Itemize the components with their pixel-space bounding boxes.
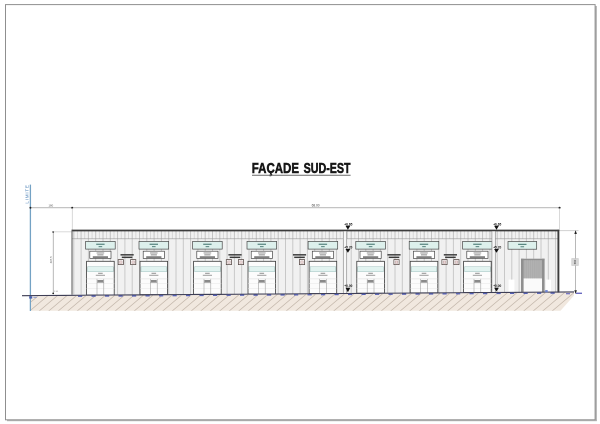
svg-text:+0.00: +0.00	[344, 284, 352, 288]
svg-text:+6.65: +6.65	[493, 222, 501, 226]
svg-text:LIMITE: LIMITE	[24, 185, 29, 204]
svg-text:FAÇADE: FAÇADE	[252, 161, 299, 177]
svg-text:SUD-EST: SUD-EST	[304, 161, 351, 177]
svg-text:+0.00: +0.00	[493, 284, 501, 288]
svg-text:667,5: 667,5	[49, 256, 53, 263]
svg-text:180: 180	[48, 203, 53, 207]
svg-text:+6.65: +6.65	[344, 222, 352, 226]
svg-text:660: 660	[573, 259, 577, 264]
svg-text:68.00: 68.00	[312, 204, 320, 208]
